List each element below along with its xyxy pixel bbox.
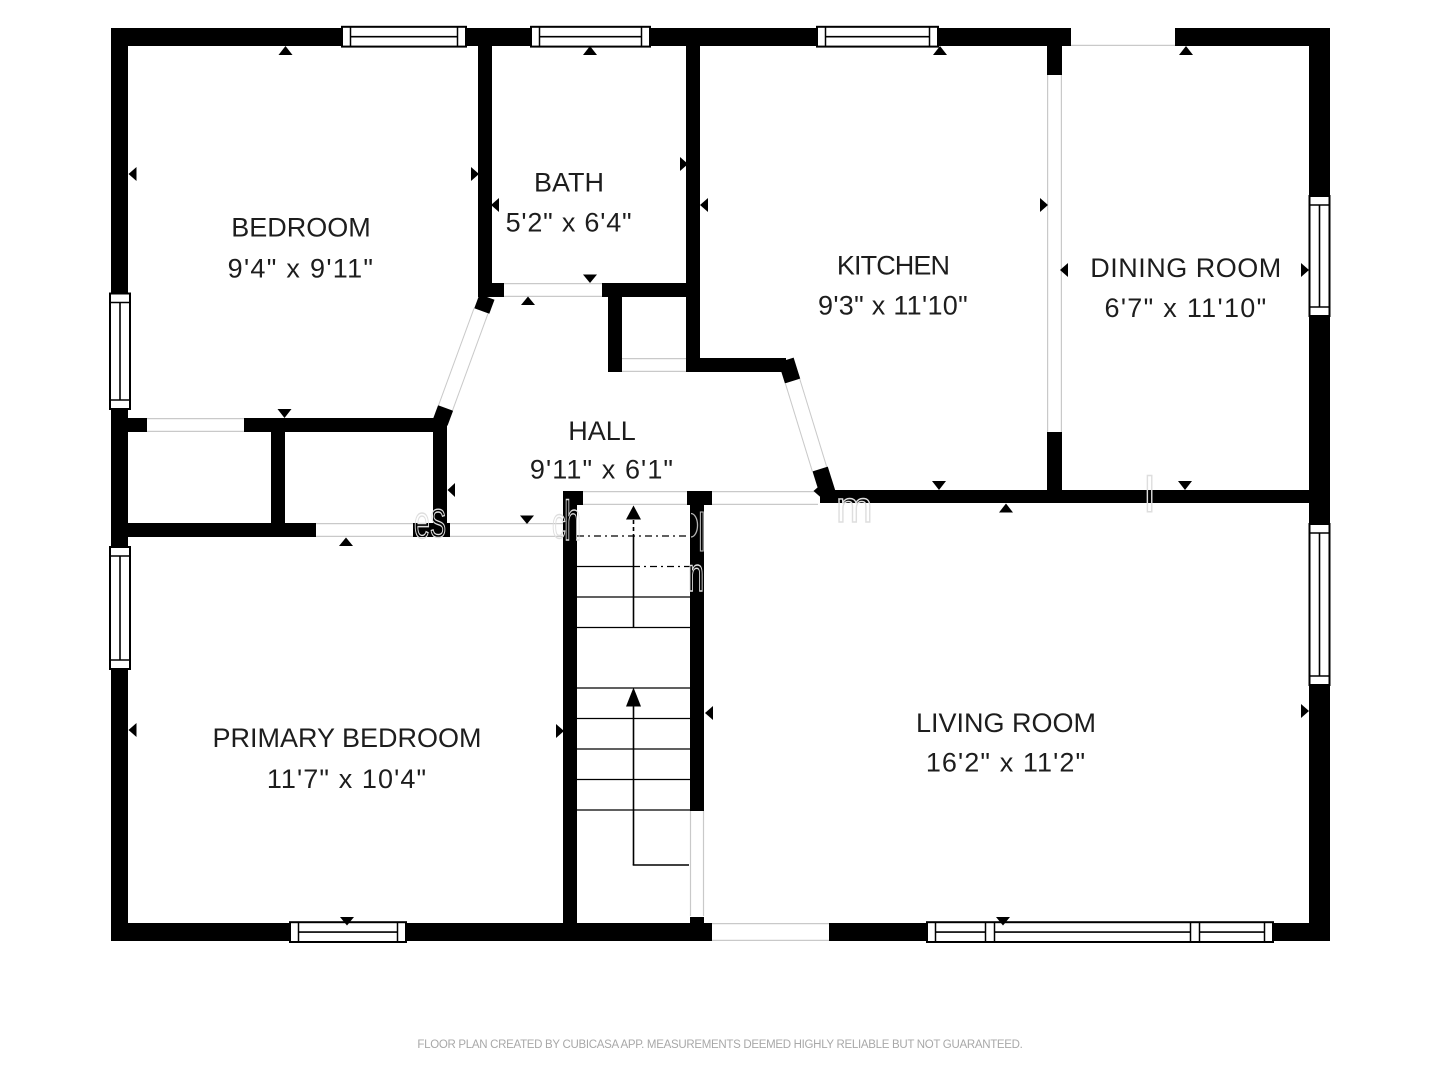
svg-text:e: e bbox=[414, 497, 430, 549]
svg-text:9'3" x 11'10": 9'3" x 11'10" bbox=[818, 291, 968, 321]
svg-text:BEDROOM: BEDROOM bbox=[231, 213, 371, 243]
svg-text:n: n bbox=[688, 549, 704, 602]
svg-text:S: S bbox=[430, 501, 446, 546]
svg-text:9'11" x 6'1": 9'11" x 6'1" bbox=[530, 455, 674, 485]
svg-text:BATH: BATH bbox=[534, 168, 604, 198]
svg-text:l: l bbox=[1144, 467, 1155, 523]
svg-text:h: h bbox=[564, 489, 581, 552]
svg-text:16'2" x 11'2": 16'2" x 11'2" bbox=[926, 748, 1086, 778]
svg-text:DINING ROOM: DINING ROOM bbox=[1090, 253, 1282, 283]
svg-text:5'2" x 6'4": 5'2" x 6'4" bbox=[506, 208, 633, 238]
svg-text:9'4" x 9'11": 9'4" x 9'11" bbox=[228, 254, 375, 284]
svg-text:FLOOR PLAN CREATED BY CUBICASA: FLOOR PLAN CREATED BY CUBICASA APP. MEAS… bbox=[417, 1039, 1022, 1051]
svg-text:HALL: HALL bbox=[568, 416, 636, 446]
svg-text:6'7" x 11'10": 6'7" x 11'10" bbox=[1105, 293, 1268, 323]
svg-text:m: m bbox=[836, 483, 873, 532]
svg-text:PRIMARY BEDROOM: PRIMARY BEDROOM bbox=[212, 723, 481, 753]
svg-text:KITCHEN: KITCHEN bbox=[837, 251, 949, 281]
svg-text:11'7" x 10'4": 11'7" x 10'4" bbox=[267, 764, 427, 794]
svg-text:LIVING ROOM: LIVING ROOM bbox=[916, 708, 1096, 738]
